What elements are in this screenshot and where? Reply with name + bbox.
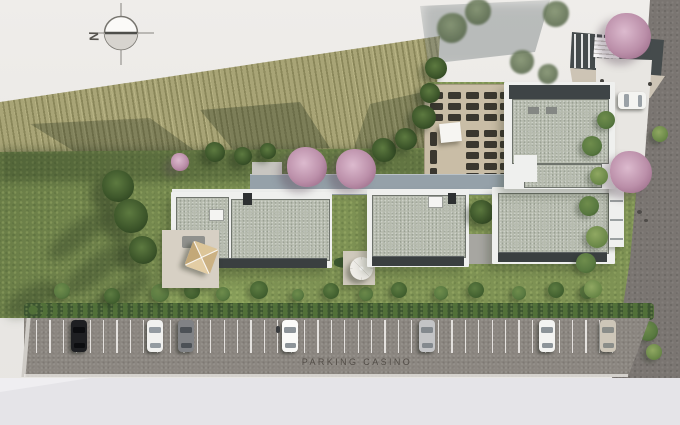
resident-parking-stall [466,103,479,110]
field-tree [234,147,252,165]
parking-stall-line [63,320,64,353]
building-b-roof [372,195,466,258]
car-rear-window [603,343,614,348]
roadside-bush [590,167,608,185]
parking-stall-line [451,320,452,353]
car-rear-window [74,343,85,348]
neighbor-tree [510,50,534,74]
parking-stall-line [317,320,318,353]
lawn-tree [102,170,134,202]
parking-stall-line [331,320,332,353]
car-windshield [180,327,192,333]
building-b-skylight [428,196,443,208]
parking-stall-line [518,320,519,353]
compass: N [84,2,160,66]
black-car [71,320,87,352]
field-tree [395,128,417,150]
blossom-tree [336,149,376,189]
parking-stall-line [49,320,50,353]
parking-stall-line [398,320,399,353]
resident-parking-stall [466,114,479,121]
parking-stall-line [170,320,171,353]
resident-parking-stall [430,132,437,146]
car-windshield [421,327,433,333]
car-rear-window [422,343,433,348]
roadside-bush [646,344,662,360]
white-van [282,320,298,352]
building-d-dark-roof [509,85,610,99]
garden-shed [439,122,462,143]
car-rear-window [285,343,296,348]
white-car [539,320,555,352]
field-tree [412,105,436,129]
parking-stall-line [344,320,345,353]
roof-vent [546,107,557,114]
resident-parking-stall [484,92,497,99]
garden-bush [548,282,564,298]
parking-stall-line [532,320,533,353]
garden-bush [512,286,526,300]
resident-parking-stall [484,163,497,170]
manhole [637,210,642,214]
parking-stall-line [224,320,225,353]
garden-bush [104,288,120,304]
resident-parking-stall [466,92,479,99]
roof-vent [528,107,539,114]
parking-stall-line [505,320,506,353]
lawn-tree [114,199,148,233]
resident-parking-stall [484,141,497,148]
garden-bush [323,283,339,299]
lawn-tree [129,236,157,264]
parking-stall-line [585,320,586,353]
roadside-bush [586,226,608,248]
resident-parking-stall [466,130,479,137]
building-d-notch [514,155,537,182]
field-tree [260,143,276,159]
garden-bush [391,282,407,298]
building-b-chimney [448,193,456,204]
blossom-tree [605,13,651,59]
parking-stall-line [371,320,372,353]
blossom-tree [287,147,327,187]
roadside-bush [652,126,668,142]
resident-parking-stall [466,163,479,170]
parking-stall-line [465,320,466,353]
car-rear-window [150,343,161,348]
hedge-row [24,303,654,320]
driveway-car [618,92,646,109]
garden-bush [434,286,448,300]
parking-stall-line [130,320,131,353]
parking-stall-line [143,320,144,353]
garden-bush [250,281,268,299]
roadside-bush [579,196,599,216]
manhole [644,219,648,222]
garden-bush [292,289,304,301]
car-rear-window [181,343,192,348]
parking-stall-line [492,320,493,353]
parking-stall-line [116,320,117,353]
white-car [147,320,163,352]
roadside-bush [584,280,602,298]
car-windshield [149,327,161,333]
parking-stall-line [277,320,278,353]
field-tree [372,138,396,162]
courtyard-patio [469,234,493,264]
parking-stall-line [250,320,251,353]
car-windshield [541,327,553,333]
neighbor-tree [543,1,569,27]
pedestrian [276,326,280,333]
resident-parking-stall [448,92,461,99]
field-tree [205,142,225,162]
public-parking-lot [24,318,650,378]
car-rear-window [542,343,553,348]
building-a-skylight [209,209,224,221]
parking-stall-line [384,320,385,353]
car-rear-window [638,95,642,107]
parking-stall-line [264,320,265,353]
building-a-chimney [243,193,252,205]
parking-stall-line [358,320,359,353]
resident-parking-stall [466,141,479,148]
resident-parking-stall [484,130,497,137]
building-a-roof-right [231,199,330,261]
blossom-tree [610,151,652,193]
parking-stall-line [438,320,439,353]
courtyard-tree [470,200,494,224]
car-windshield [73,327,85,333]
bottom-sidewalk [0,378,680,425]
parking-stall-line [572,320,573,353]
parking-curb-bottom [24,374,628,377]
roadside-bush [582,136,602,156]
car-windshield [602,327,614,333]
garden-bush [359,287,373,301]
car-windshield [624,94,629,107]
roadside-bush [597,111,615,129]
parking-stall-line [478,320,479,353]
compass-north-label: N [85,25,102,41]
parking-stall-line [210,320,211,353]
parking-stall-line [36,320,37,353]
garden-bush [468,282,484,298]
blossom-tree [171,153,189,171]
roadside-bush [576,253,596,273]
parking-stall-line [304,320,305,353]
garden-bush [54,283,70,299]
parking-stall-line [559,320,560,353]
resident-parking-stall [448,103,461,110]
beige-car [600,320,616,352]
field-tree [425,57,447,79]
parking-label: PARKING CASINO [250,357,464,369]
parking-stall-line [411,320,412,353]
resident-parking-stall [484,103,497,110]
bollard [648,82,652,86]
building-c-balcony-slats [610,183,623,245]
resident-parking-stall [430,150,437,164]
parking-stall-line [197,320,198,353]
resident-parking-stall [484,152,497,159]
car-windshield [284,327,296,333]
resident-parking-stall [448,114,461,121]
field-tree [420,83,440,103]
gray-car [178,320,194,352]
walkway-branch [252,162,282,175]
silver-car [419,320,435,352]
building-b-balcony-band [372,256,464,266]
site-plan-rendering: PARKING CASINO N [0,0,680,425]
neighbor-tree [538,64,558,84]
resident-parking-stall [466,152,479,159]
parking-stall-line [103,320,104,353]
resident-parking-stall [484,114,497,121]
garden-bush [216,287,230,301]
parking-stall-line [237,320,238,353]
parking-stall-line [90,320,91,353]
